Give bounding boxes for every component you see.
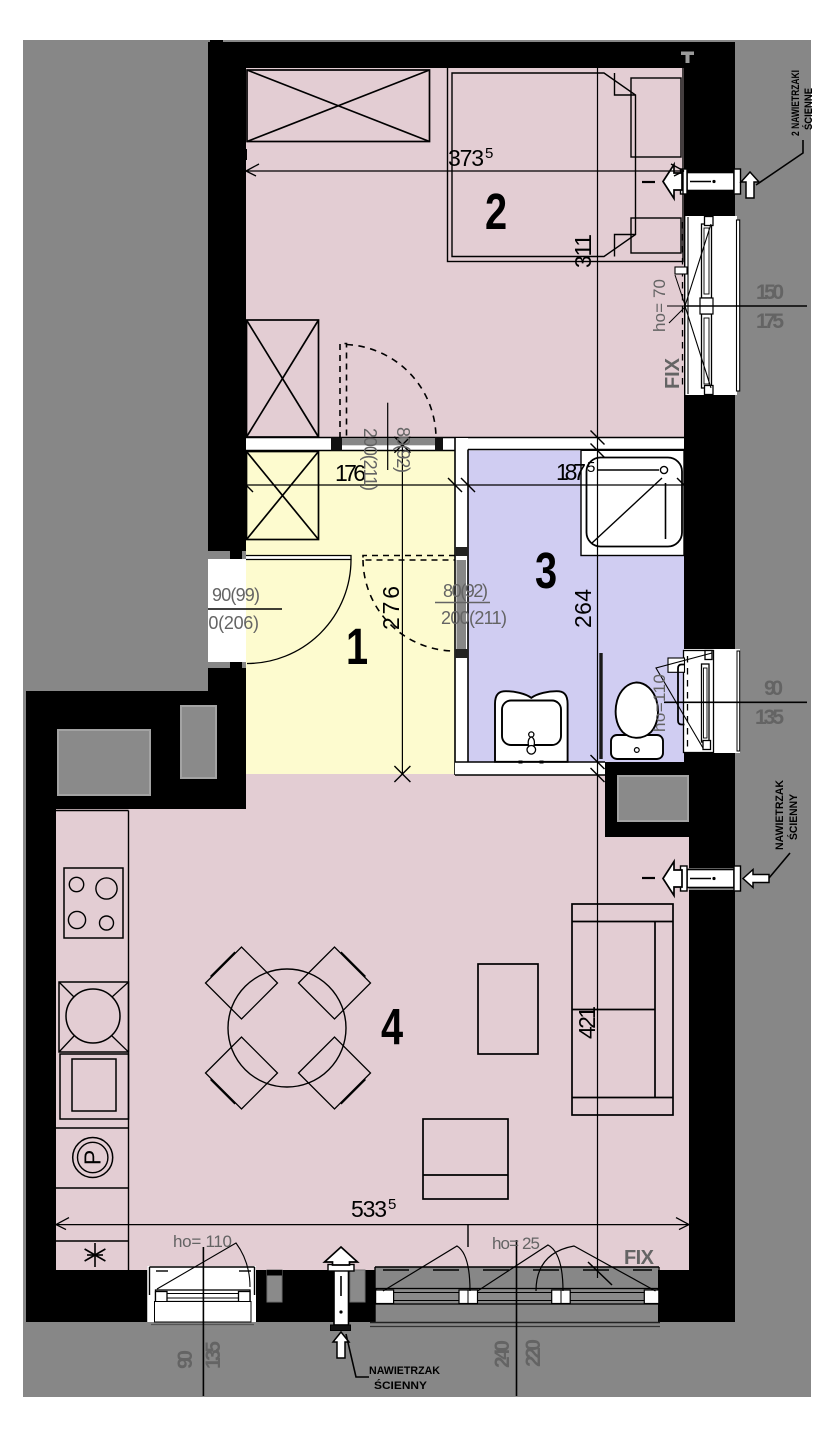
svg-text:311: 311 [570,234,596,268]
svg-text:ho= 25: ho= 25 [492,1234,540,1253]
svg-text:200(211): 200(211) [441,608,507,628]
svg-text:373: 373 [448,145,484,171]
svg-text:135: 135 [202,1341,225,1369]
svg-text:FIX: FIX [662,357,684,389]
svg-text:240: 240 [491,1340,514,1368]
svg-text:3: 3 [535,542,557,599]
svg-text:5: 5 [587,459,595,476]
svg-text:421: 421 [574,1006,600,1039]
svg-text:80(92): 80(92) [393,427,413,473]
svg-text:220: 220 [522,1339,545,1367]
svg-text:5: 5 [388,1196,396,1213]
svg-text:187: 187 [556,459,586,485]
svg-text:150: 150 [756,281,784,304]
svg-text:1: 1 [346,618,368,675]
svg-text:NAWIETRZAK: NAWIETRZAK [369,1365,440,1377]
svg-text:90: 90 [174,1350,197,1369]
svg-text:ho= 70: ho= 70 [650,279,669,332]
svg-text:4: 4 [381,998,404,1055]
svg-text:276: 276 [378,586,404,630]
svg-text:2: 2 [485,183,507,240]
svg-text:80(92): 80(92) [443,581,488,601]
svg-text:264: 264 [570,589,596,628]
svg-text:P: P [80,1150,106,1165]
svg-text:ŚCIENNY: ŚCIENNY [787,793,800,840]
svg-text:FIX: FIX [624,1247,655,1269]
svg-text:ho= 110: ho= 110 [173,1232,232,1251]
svg-text:135: 135 [755,706,784,729]
svg-text:ŚCIENNY: ŚCIENNY [374,1379,428,1392]
svg-text:NAWIETRZAK: NAWIETRZAK [774,780,786,850]
svg-text:90(99): 90(99) [212,585,260,605]
svg-text:ŚCIENNE: ŚCIENNE [802,88,815,130]
svg-text:175: 175 [756,310,784,333]
svg-text:533: 533 [351,1196,387,1222]
svg-text:5: 5 [485,145,493,162]
svg-text:ho=110: ho=110 [650,674,669,732]
svg-text:200(211): 200(211) [360,428,380,491]
svg-text:90: 90 [764,677,783,700]
svg-text:2 NAWIETRZAKI: 2 NAWIETRZAKI [790,70,802,136]
